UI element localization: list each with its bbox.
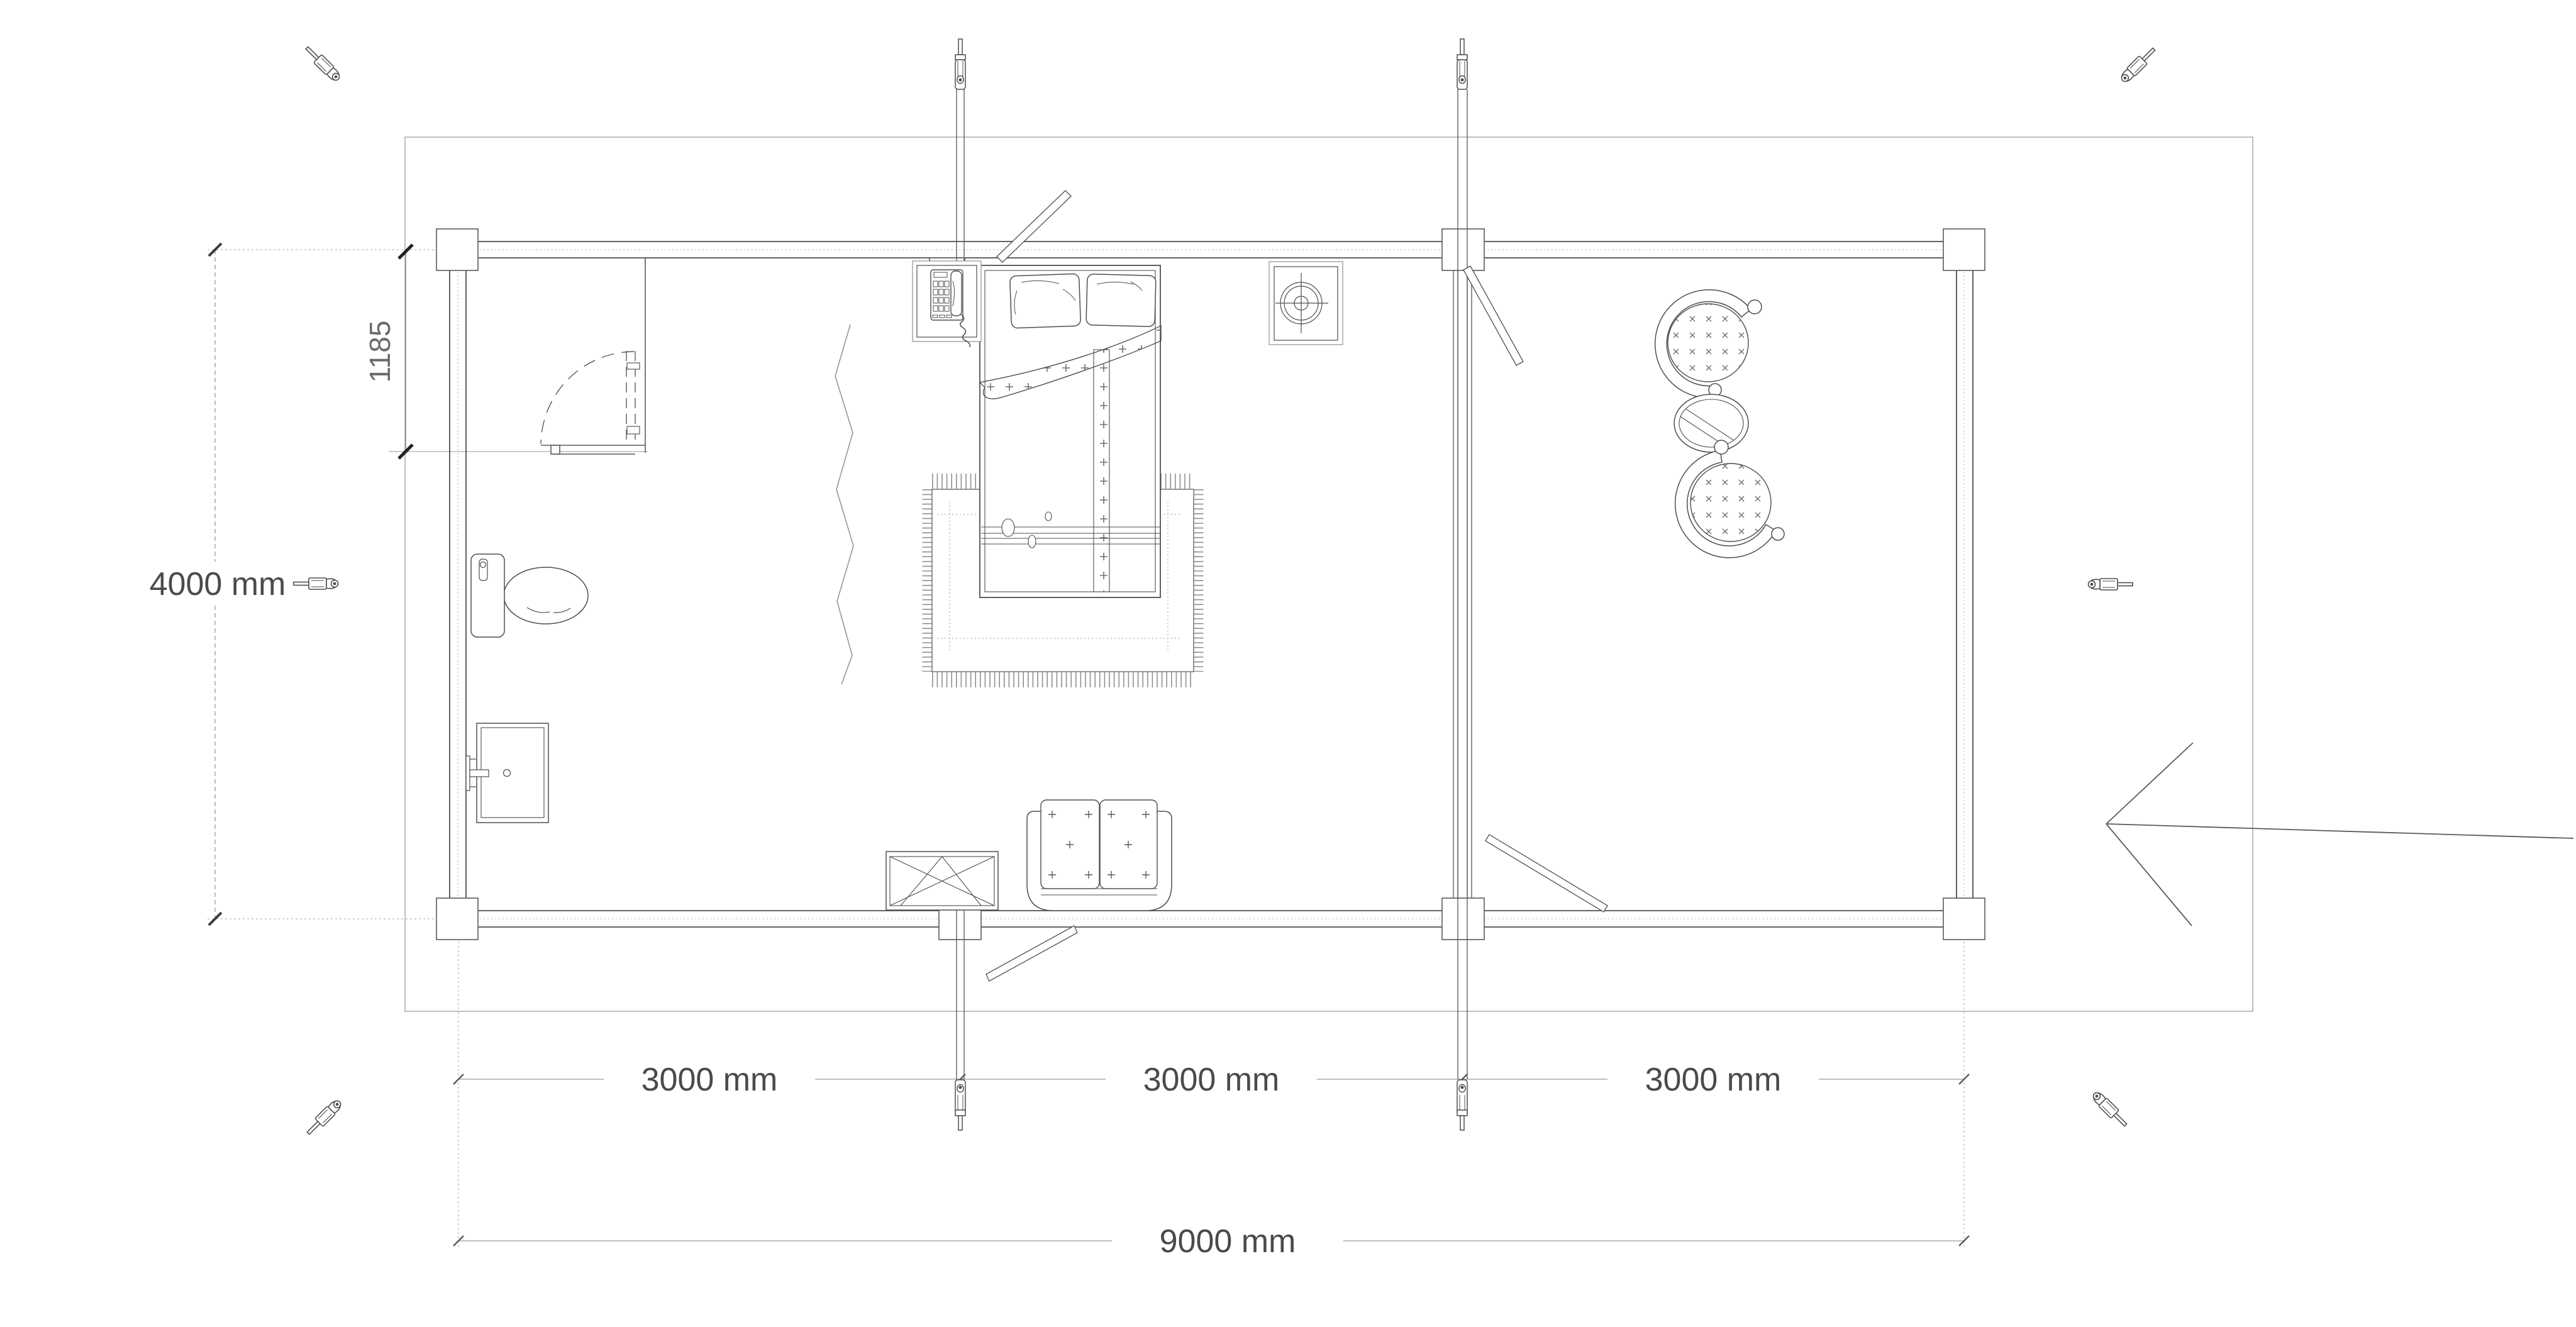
entrance-arrow-icon bbox=[2106, 743, 2573, 926]
blanket-runner bbox=[1094, 350, 1109, 592]
dimension-9000: 9000 mm bbox=[453, 1223, 1969, 1260]
dim-label-4000: 4000 mm bbox=[150, 566, 286, 602]
door-leaf-bottom bbox=[986, 926, 1077, 981]
turnbuckle-icon-right bbox=[2089, 579, 2133, 590]
turnbuckle-icon-bottom-left bbox=[304, 1098, 344, 1138]
partition-wall bbox=[1453, 270, 1472, 898]
turnbuckle-icon-top-right bbox=[2119, 45, 2158, 85]
folding-table bbox=[886, 852, 998, 910]
bathroom-door bbox=[541, 351, 640, 444]
toilet bbox=[471, 554, 588, 637]
telephone-table bbox=[913, 261, 981, 347]
dim-label-3000-3: 3000 mm bbox=[1645, 1062, 1782, 1098]
interior-door-leaf bbox=[1463, 266, 1523, 365]
turnbuckle-icon-bottom-right bbox=[2090, 1090, 2130, 1130]
lounge-side-table bbox=[1670, 394, 1748, 457]
bathroom-partition bbox=[541, 258, 645, 454]
turnbuckle-icon-left bbox=[294, 578, 338, 589]
dim-label-9000: 9000 mm bbox=[1160, 1223, 1296, 1260]
armchair-bottom bbox=[1675, 440, 1784, 558]
door-leaf-right-room bbox=[1485, 835, 1607, 912]
window-leaf-top bbox=[997, 191, 1071, 262]
bed bbox=[980, 265, 1161, 597]
dim-label-1185: 1185 bbox=[364, 321, 396, 383]
dim-label-3000-1: 3000 mm bbox=[641, 1062, 778, 1098]
curtain-zigzag bbox=[835, 325, 853, 684]
lamp-table bbox=[1269, 262, 1343, 345]
tie-rod-bolt-icon bbox=[1457, 1080, 1467, 1130]
tie-rod-bolt-icon bbox=[1457, 39, 1467, 89]
sofa bbox=[1027, 800, 1172, 911]
turnbuckle-icon-top-left bbox=[303, 44, 343, 84]
floor-plan-canvas: 4000 mm 1185 3000 mm 3000 mm 3000 mm 900… bbox=[0, 0, 2576, 1327]
dim-label-3000-2: 3000 mm bbox=[1143, 1062, 1280, 1098]
dimension-3000-row: 3000 mm 3000 mm 3000 mm bbox=[453, 941, 1969, 1248]
tie-rod-bolt-icon bbox=[955, 39, 965, 89]
dimension-1185: 1185 bbox=[364, 245, 648, 458]
washbasin bbox=[466, 723, 548, 823]
drain-icon bbox=[504, 770, 511, 777]
tie-rod-bolt-icon bbox=[955, 1080, 965, 1130]
wall-posts bbox=[436, 229, 1985, 940]
armchair-top bbox=[1655, 290, 1762, 398]
